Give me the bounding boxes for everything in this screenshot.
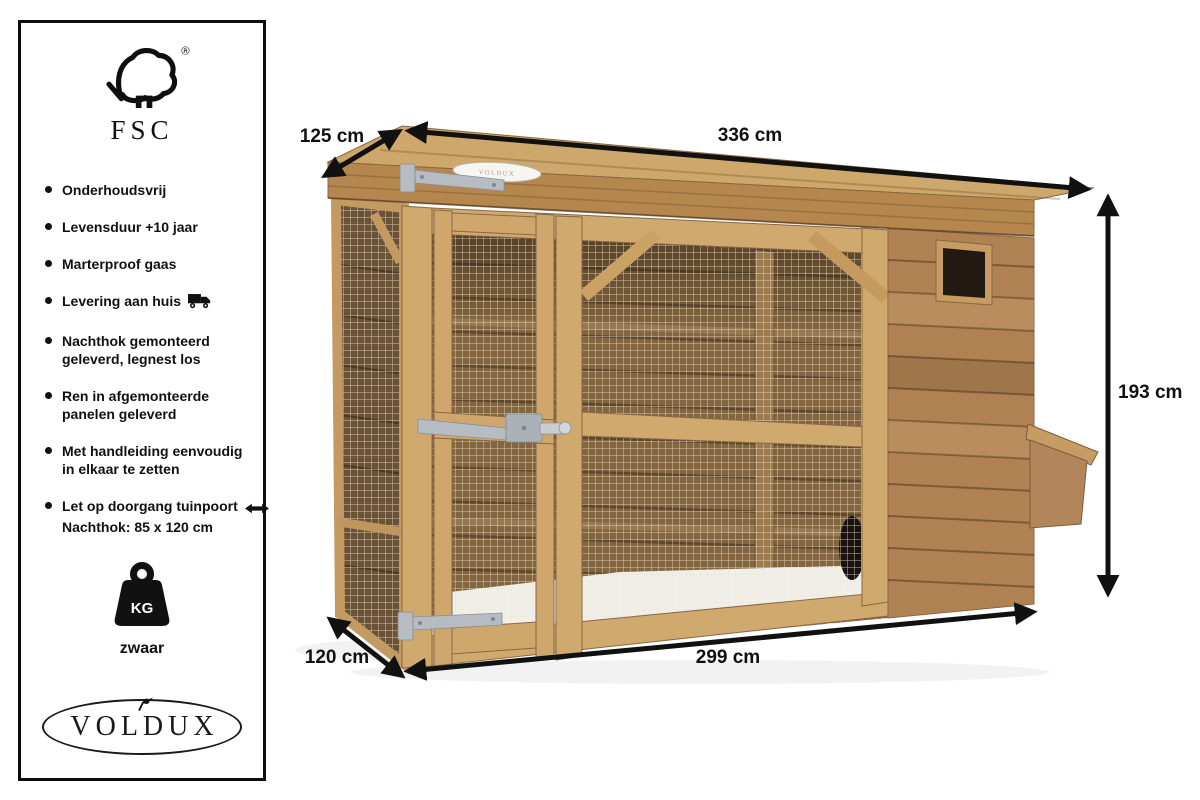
coop-diagram: VOLDUX bbox=[0, 0, 1200, 800]
coop-left-mesh-wall bbox=[336, 200, 404, 664]
dim-bottom-depth-label: 120 cm bbox=[301, 647, 373, 669]
product-spec-image: ® FSC Onderhoudsvrij Levensduur +10 jaar… bbox=[0, 0, 1200, 800]
nachthok-section bbox=[888, 228, 1098, 618]
dim-top-width-label: 336 cm bbox=[687, 125, 813, 147]
dim-bottom-width-label: 299 cm bbox=[667, 647, 789, 669]
coop-photo: VOLDUX bbox=[328, 126, 1098, 668]
dim-height-label: 193 cm bbox=[1118, 382, 1198, 404]
dim-top-depth-label: 125 cm bbox=[296, 126, 368, 148]
